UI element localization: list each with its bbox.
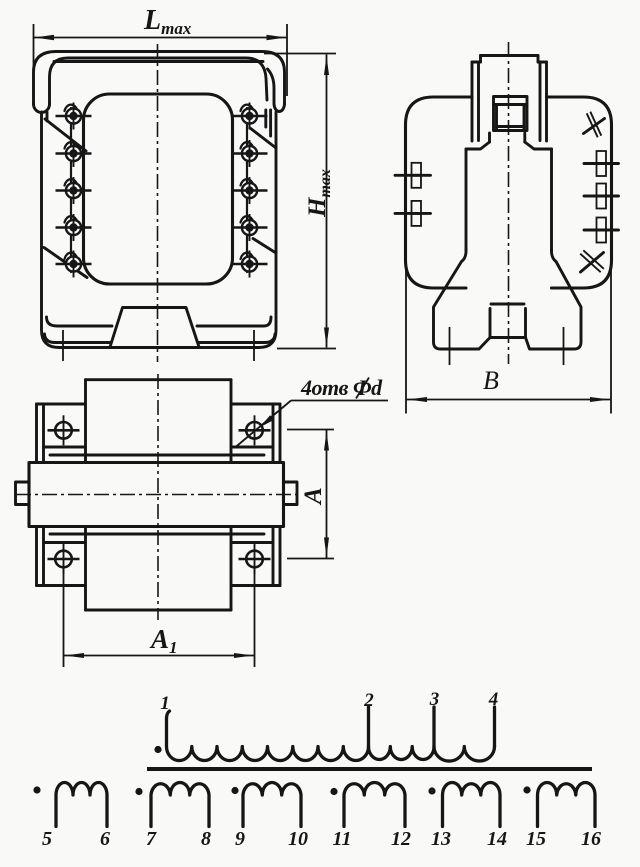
svg-text:11: 11 [333, 828, 352, 850]
svg-text:6: 6 [100, 828, 110, 850]
svg-text:1: 1 [160, 693, 170, 714]
svg-text:2: 2 [363, 690, 374, 711]
svg-text:4отв Фd: 4отв Фd [300, 375, 383, 400]
svg-text:5: 5 [42, 828, 52, 850]
svg-text:15: 15 [526, 828, 546, 850]
svg-text:4: 4 [488, 689, 499, 710]
svg-text:13: 13 [431, 828, 451, 850]
svg-text:9: 9 [235, 828, 245, 850]
svg-text:14: 14 [487, 828, 507, 850]
svg-text:8: 8 [201, 828, 211, 850]
svg-text:12: 12 [391, 828, 411, 850]
svg-text:3: 3 [429, 689, 440, 710]
svg-text:В: В [483, 366, 499, 395]
svg-text:16: 16 [581, 828, 601, 850]
svg-text:A: A [300, 487, 327, 506]
svg-text:10: 10 [288, 828, 308, 850]
svg-text:7: 7 [146, 828, 157, 850]
